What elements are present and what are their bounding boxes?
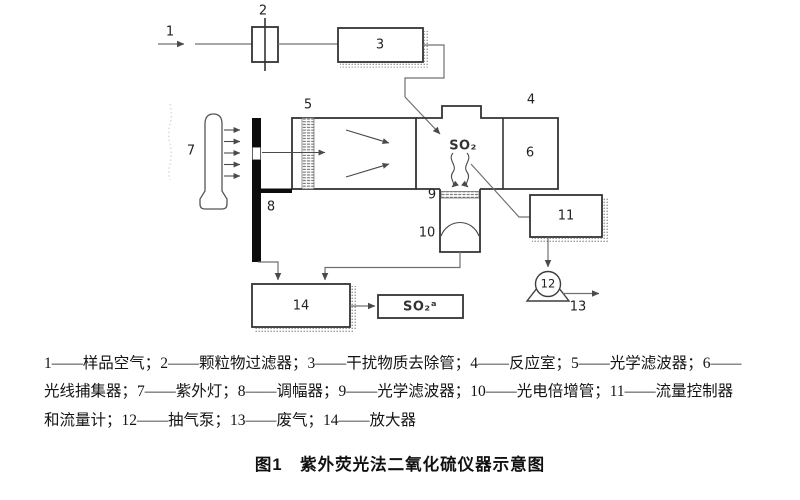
label-7: 7 <box>187 145 195 158</box>
figure-page: 1 2 3 4 5 6 7 8 9 10 11 12 13 14 SO₂ SO₂… <box>0 0 800 500</box>
legend-line-2: 光线捕集器；7——紫外灯；8——调幅器；9——光学滤波器；10——光电倍增管；1… <box>44 378 764 406</box>
legend-line-3: 和流量计；12——抽气泵；13——废气；14——放大器 <box>44 407 764 435</box>
label-9: 9 <box>428 189 436 202</box>
label-8: 8 <box>267 201 275 214</box>
reaction-chamber <box>262 106 558 189</box>
so2-chamber-label: SO₂ <box>449 140 477 153</box>
optical-filter-5-strip <box>302 118 314 189</box>
label-6: 6 <box>526 147 534 160</box>
label-14: 14 <box>293 300 310 313</box>
amplifier-box <box>252 284 375 333</box>
optical-filter-9-strip <box>441 192 479 199</box>
uv-lamp <box>200 114 240 209</box>
connector-pmt-to-amplifier <box>325 252 460 280</box>
figure-caption: 图1 紫外荧光法二氧化硫仪器示意图 <box>0 451 800 475</box>
so2-output-label: SO₂ᵃ <box>403 301 437 314</box>
label-2: 2 <box>259 5 267 18</box>
legend: 1——样品空气；2——颗粒物过滤器；3——干扰物质去除管；4——反应室；5——光… <box>44 350 764 435</box>
label-3: 3 <box>376 39 384 52</box>
schematic-canvas <box>0 0 800 345</box>
label-13: 13 <box>570 301 587 314</box>
suction-pump <box>527 272 599 302</box>
legend-line-1: 1——样品空气；2——颗粒物过滤器；3——干扰物质去除管；4——反应室；5——光… <box>44 350 764 378</box>
fluorescence-waves <box>451 153 469 187</box>
scan-artifact <box>169 104 172 180</box>
modulator-aperture <box>253 148 261 160</box>
label-4: 4 <box>527 94 535 107</box>
label-1: 1 <box>166 26 174 39</box>
label-12: 12 <box>541 278 556 290</box>
photomultiplier-box <box>440 189 480 252</box>
connector-modulator-to-amplifier <box>258 262 278 280</box>
label-5: 5 <box>304 99 312 112</box>
particulate-filter-box <box>252 18 278 71</box>
label-11: 11 <box>558 210 575 223</box>
label-10: 10 <box>419 227 436 240</box>
